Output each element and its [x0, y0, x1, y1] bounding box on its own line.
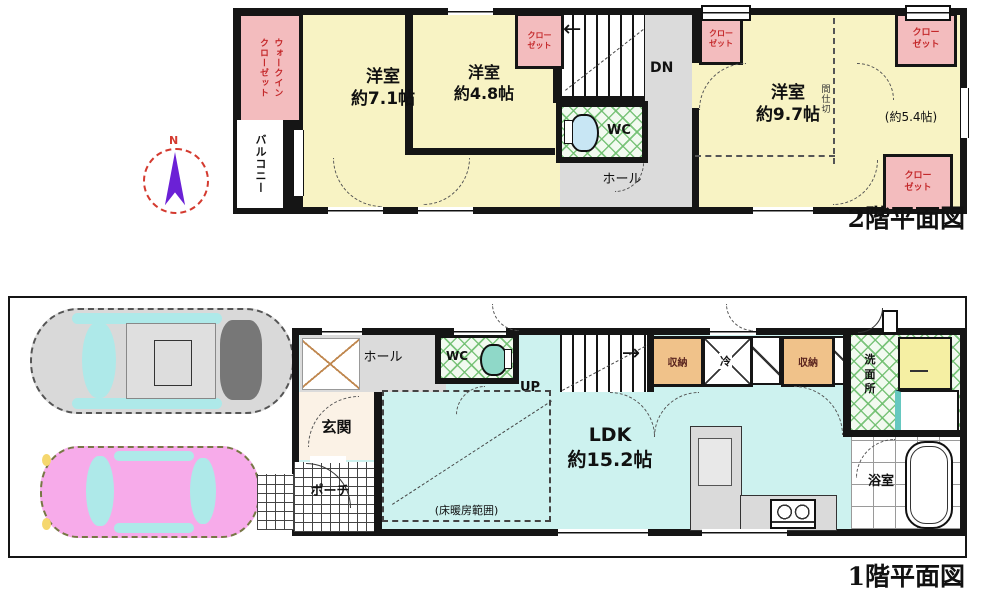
car-pink-rear-window	[190, 458, 216, 524]
porch-label: ポーチ	[298, 480, 362, 498]
toilet-2f-tank-icon	[564, 120, 573, 144]
ext-door-arc-a	[492, 304, 519, 331]
wall-bath-top	[843, 430, 960, 437]
closet-label: クロー ゼット	[912, 28, 939, 51]
toilet-2f-icon	[569, 114, 599, 152]
washing-machine	[898, 337, 952, 390]
car-gray-sunroof	[154, 340, 192, 386]
floor2-plan: ウォークイン クローゼット バルコニー ← DN ホール WC クロー ゼット	[233, 8, 967, 214]
closet-panel-a	[751, 336, 781, 385]
wall-washroom-left	[843, 334, 851, 432]
sliding-door-bottom-a	[558, 529, 648, 536]
balcony-label: バルコニー	[252, 134, 268, 194]
wc-1f-label: WC	[446, 349, 468, 363]
toilet-1f-tank-icon	[504, 349, 512, 369]
ldk-left-wall	[374, 392, 382, 536]
stove-icon	[770, 499, 816, 529]
walk-in-closet-label: ウォークイン クローゼット	[256, 38, 285, 98]
floor1-caption: 1階平面図	[790, 557, 965, 593]
partition-line-horizontal	[695, 155, 835, 157]
floor-heating-label: (床暖房範囲)	[404, 502, 529, 518]
closet-top-right: クロー ゼット	[895, 13, 957, 67]
car-pink-side-window-bottom	[114, 523, 194, 533]
car-pink-headlight-top	[42, 454, 51, 466]
wc-2f-label: WC	[607, 123, 631, 138]
bathtub-icon	[905, 441, 953, 529]
back-door-leaf	[882, 310, 898, 334]
car-gray	[30, 308, 294, 414]
stair-arrow-icon: ←	[563, 18, 627, 42]
porch-approach	[257, 474, 294, 530]
refrigerator-label: 冷	[719, 353, 732, 369]
floor1-site: ホール 玄関 ポーチ WC → UP 収納 冷 収納	[8, 296, 967, 558]
sliding-door-bottom-b	[702, 529, 787, 536]
down-label: DN	[650, 60, 690, 76]
window-box-top-2f-a	[701, 5, 751, 21]
storage-1: 収納	[651, 336, 704, 387]
car-pink-windshield	[86, 456, 114, 526]
ext-door-arc-b	[726, 304, 753, 331]
window-right-2f	[960, 88, 969, 138]
car-pink	[40, 446, 260, 538]
window-top-1f-b	[454, 328, 506, 335]
porch-door-gap	[310, 456, 346, 463]
closet-label: クロー ゼット	[709, 29, 733, 50]
closet-label: クロー ゼット	[528, 31, 552, 52]
wash-basin	[895, 390, 959, 432]
washing-machine-handle	[910, 370, 928, 372]
room-9-7-label: 洋室 約9.7帖	[728, 80, 848, 128]
washroom-label: 洗 面 所	[865, 353, 876, 398]
refrigerator-space: 冷	[702, 336, 753, 387]
window-bottom-2f-a	[328, 207, 383, 214]
closet-label: クロー ゼット	[904, 171, 931, 194]
bathtub-inner-icon	[910, 446, 948, 524]
kitchen-sink	[698, 438, 732, 486]
compass: N	[140, 134, 212, 220]
floorplan-page: N ウォークイン クローゼット バルコニー ← DN ホール	[0, 0, 1000, 597]
storage-1-label: 収納	[668, 354, 688, 369]
floor-heating-diagonal	[392, 401, 552, 505]
car-gray-side-window-bottom	[72, 398, 222, 409]
compass-north-label: N	[169, 134, 178, 147]
window-box-top-2f-b	[905, 5, 951, 21]
wall-under-room48	[405, 148, 555, 155]
car-gray-rear-window	[220, 320, 262, 400]
balcony-window	[293, 130, 304, 196]
car-pink-headlight-bottom	[42, 518, 51, 530]
floor-heating-zone: (床暖房範囲)	[382, 390, 551, 522]
storage-2-label: 収納	[798, 354, 818, 369]
floor2-caption: 2階平面図	[790, 199, 965, 233]
room-4-8-label: 洋室 約4.8帖	[425, 60, 543, 108]
storage-2: 収納	[781, 336, 835, 387]
car-pink-side-window-top	[114, 451, 194, 461]
window-top-2f	[448, 8, 493, 15]
walk-in-closet: ウォークイン クローゼット	[238, 13, 302, 123]
room-5-4-label: (約5.4帖)	[861, 107, 961, 125]
washroom-label-wrap: 洗 面 所	[861, 340, 879, 410]
hall-1f-label: ホール	[346, 346, 420, 364]
window-top-1f-a	[322, 328, 362, 335]
car-gray-windshield	[82, 322, 116, 398]
wall-right-of-corridor-top	[692, 15, 699, 63]
window-bottom-2f-b	[418, 207, 473, 214]
balcony: バルコニー	[237, 120, 283, 208]
wall-right-of-corridor-bottom	[692, 108, 699, 207]
